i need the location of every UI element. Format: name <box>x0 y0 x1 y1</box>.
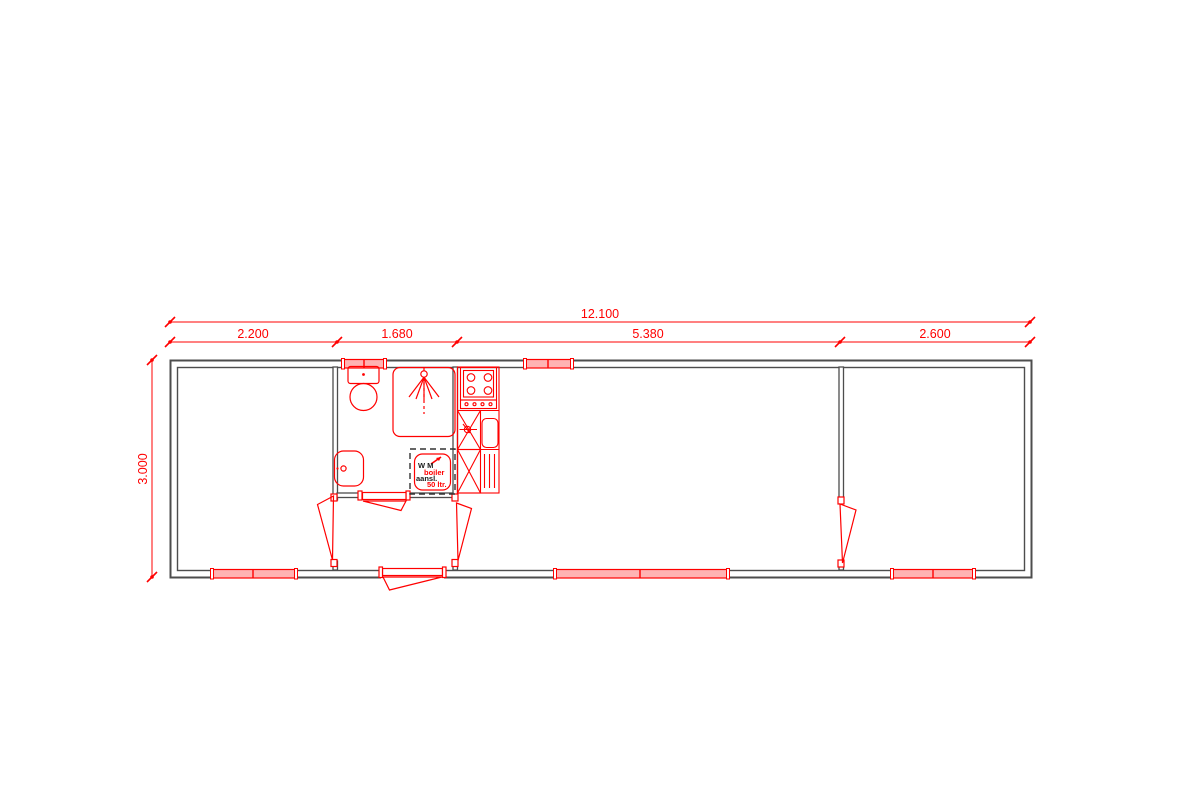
kitchen-sink-cabinet <box>458 411 499 450</box>
left-room-door <box>318 494 338 567</box>
stove-knob-strip <box>461 400 497 409</box>
toilet <box>348 367 379 411</box>
kitchen-lower-cabinet <box>458 450 495 494</box>
stove-knobs <box>465 403 492 406</box>
dim-label-seg1: 2.200 <box>237 327 268 341</box>
window-right-room-bottom <box>891 568 976 580</box>
dim-label-overall: 12.100 <box>581 307 619 321</box>
bathroom-door-swing <box>363 501 406 511</box>
dimension-segments: 2.200 1.680 5.380 2.600 <box>165 327 1035 347</box>
right-room-door-swing <box>840 504 856 563</box>
entrance-door <box>379 567 446 590</box>
dimension-height: 3.000 <box>136 355 157 582</box>
kitchen-drainer-lines <box>485 454 495 488</box>
outer-wall <box>171 361 1032 578</box>
washbasin <box>335 451 364 486</box>
windows <box>211 358 976 580</box>
left-room-door-swing <box>318 496 334 560</box>
bathroom-door <box>358 491 410 511</box>
shower-head-icon <box>421 371 427 377</box>
washbasin-bowl <box>335 451 364 486</box>
window-kitchen-top <box>524 358 574 370</box>
washbasin-tap-icon <box>336 467 338 469</box>
dim-label-seg3: 5.380 <box>632 327 663 341</box>
right-room-door <box>838 497 856 567</box>
toilet-bowl <box>350 384 377 411</box>
shower <box>393 368 455 437</box>
window-living-room-bottom <box>554 568 730 580</box>
stove-burners <box>467 374 492 395</box>
dim-label-seg4: 2.600 <box>919 327 950 341</box>
dimension-overall-width: 12.100 <box>165 307 1035 327</box>
washing-machine-area: W M boiler aansl. 50 ltr. <box>410 449 455 494</box>
kitchen-unit <box>458 367 500 493</box>
dim-label-height: 3.000 <box>136 453 150 484</box>
kitchen-sink-basin <box>482 419 498 448</box>
living-room-door <box>452 494 472 567</box>
toilet-button <box>362 373 365 376</box>
boiler-label-line2: 50 ltr. <box>427 480 447 489</box>
floorplan-drawing: 12.100 2.200 1.680 5.380 2.600 3.000 <box>0 0 1200 800</box>
dim-label-seg2: 1.680 <box>381 327 412 341</box>
wall-room-divider <box>839 367 844 503</box>
stove <box>461 368 497 409</box>
window-left-room-bottom <box>211 568 298 580</box>
floorplan-canvas: 12.100 2.200 1.680 5.380 2.600 3.000 <box>0 0 1200 800</box>
living-room-door-swing <box>457 503 472 561</box>
washbasin-drain <box>341 466 346 471</box>
